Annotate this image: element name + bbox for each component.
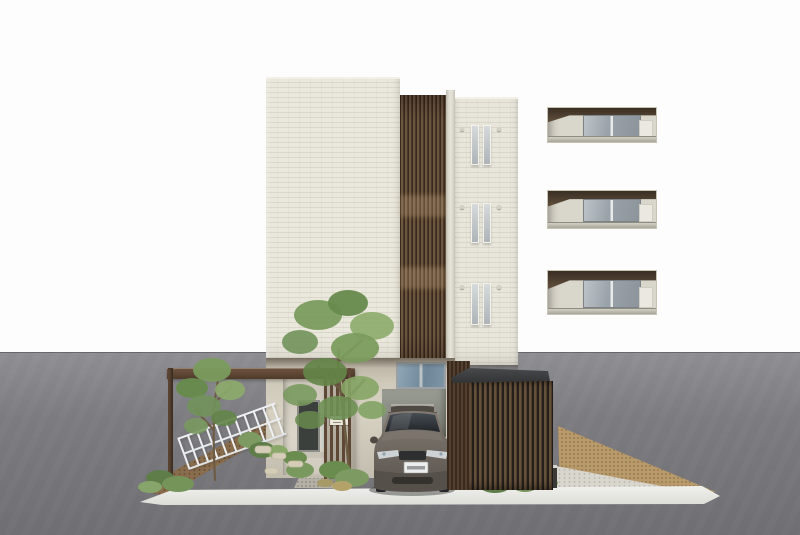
bike-shelter-front-slats <box>469 381 553 490</box>
license-plate-characters-illegible <box>407 466 425 470</box>
car-roof-rail <box>388 404 391 412</box>
bollard-lamp <box>553 465 557 468</box>
rendering-scene <box>0 0 800 535</box>
tree-small <box>176 358 245 480</box>
bollard-light <box>553 465 557 488</box>
parked-suv <box>365 396 460 498</box>
car-mirror <box>370 437 378 444</box>
headlight-lens <box>439 452 442 455</box>
bumper-intake <box>392 477 433 484</box>
car-grille <box>399 451 426 460</box>
car-roof-rail <box>434 404 437 412</box>
headlight-lens <box>382 452 385 455</box>
